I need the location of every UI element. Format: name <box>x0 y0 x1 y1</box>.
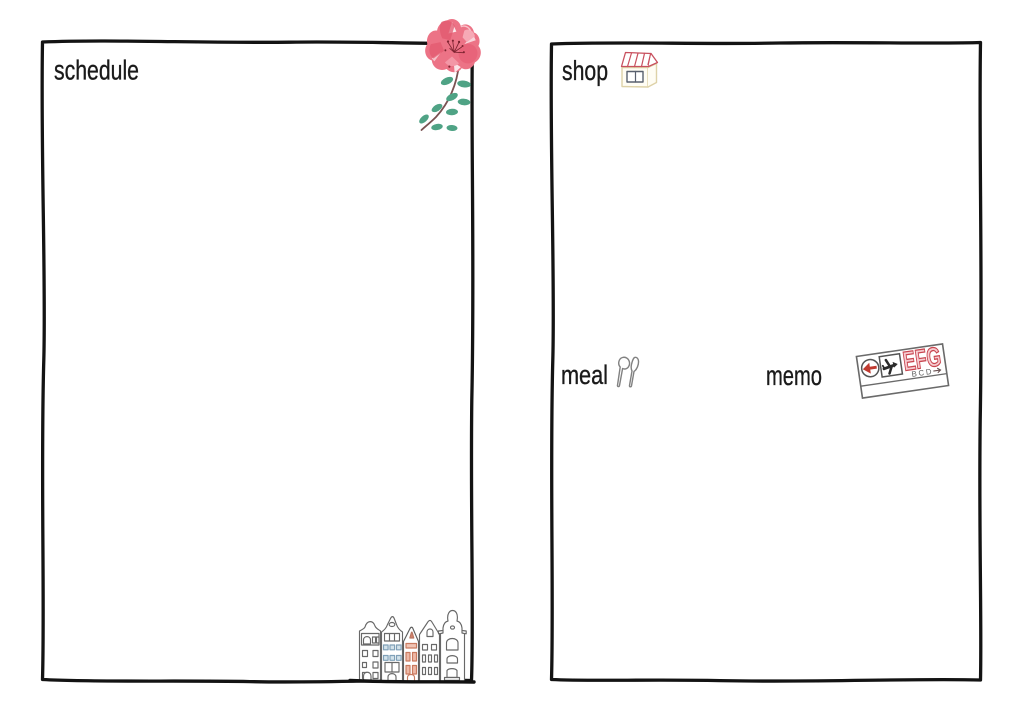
svg-text:meal: meal <box>561 360 608 390</box>
svg-text:memo: memo <box>766 360 822 391</box>
svg-text:shop: shop <box>562 55 608 86</box>
svg-text:schedule: schedule <box>54 55 139 86</box>
